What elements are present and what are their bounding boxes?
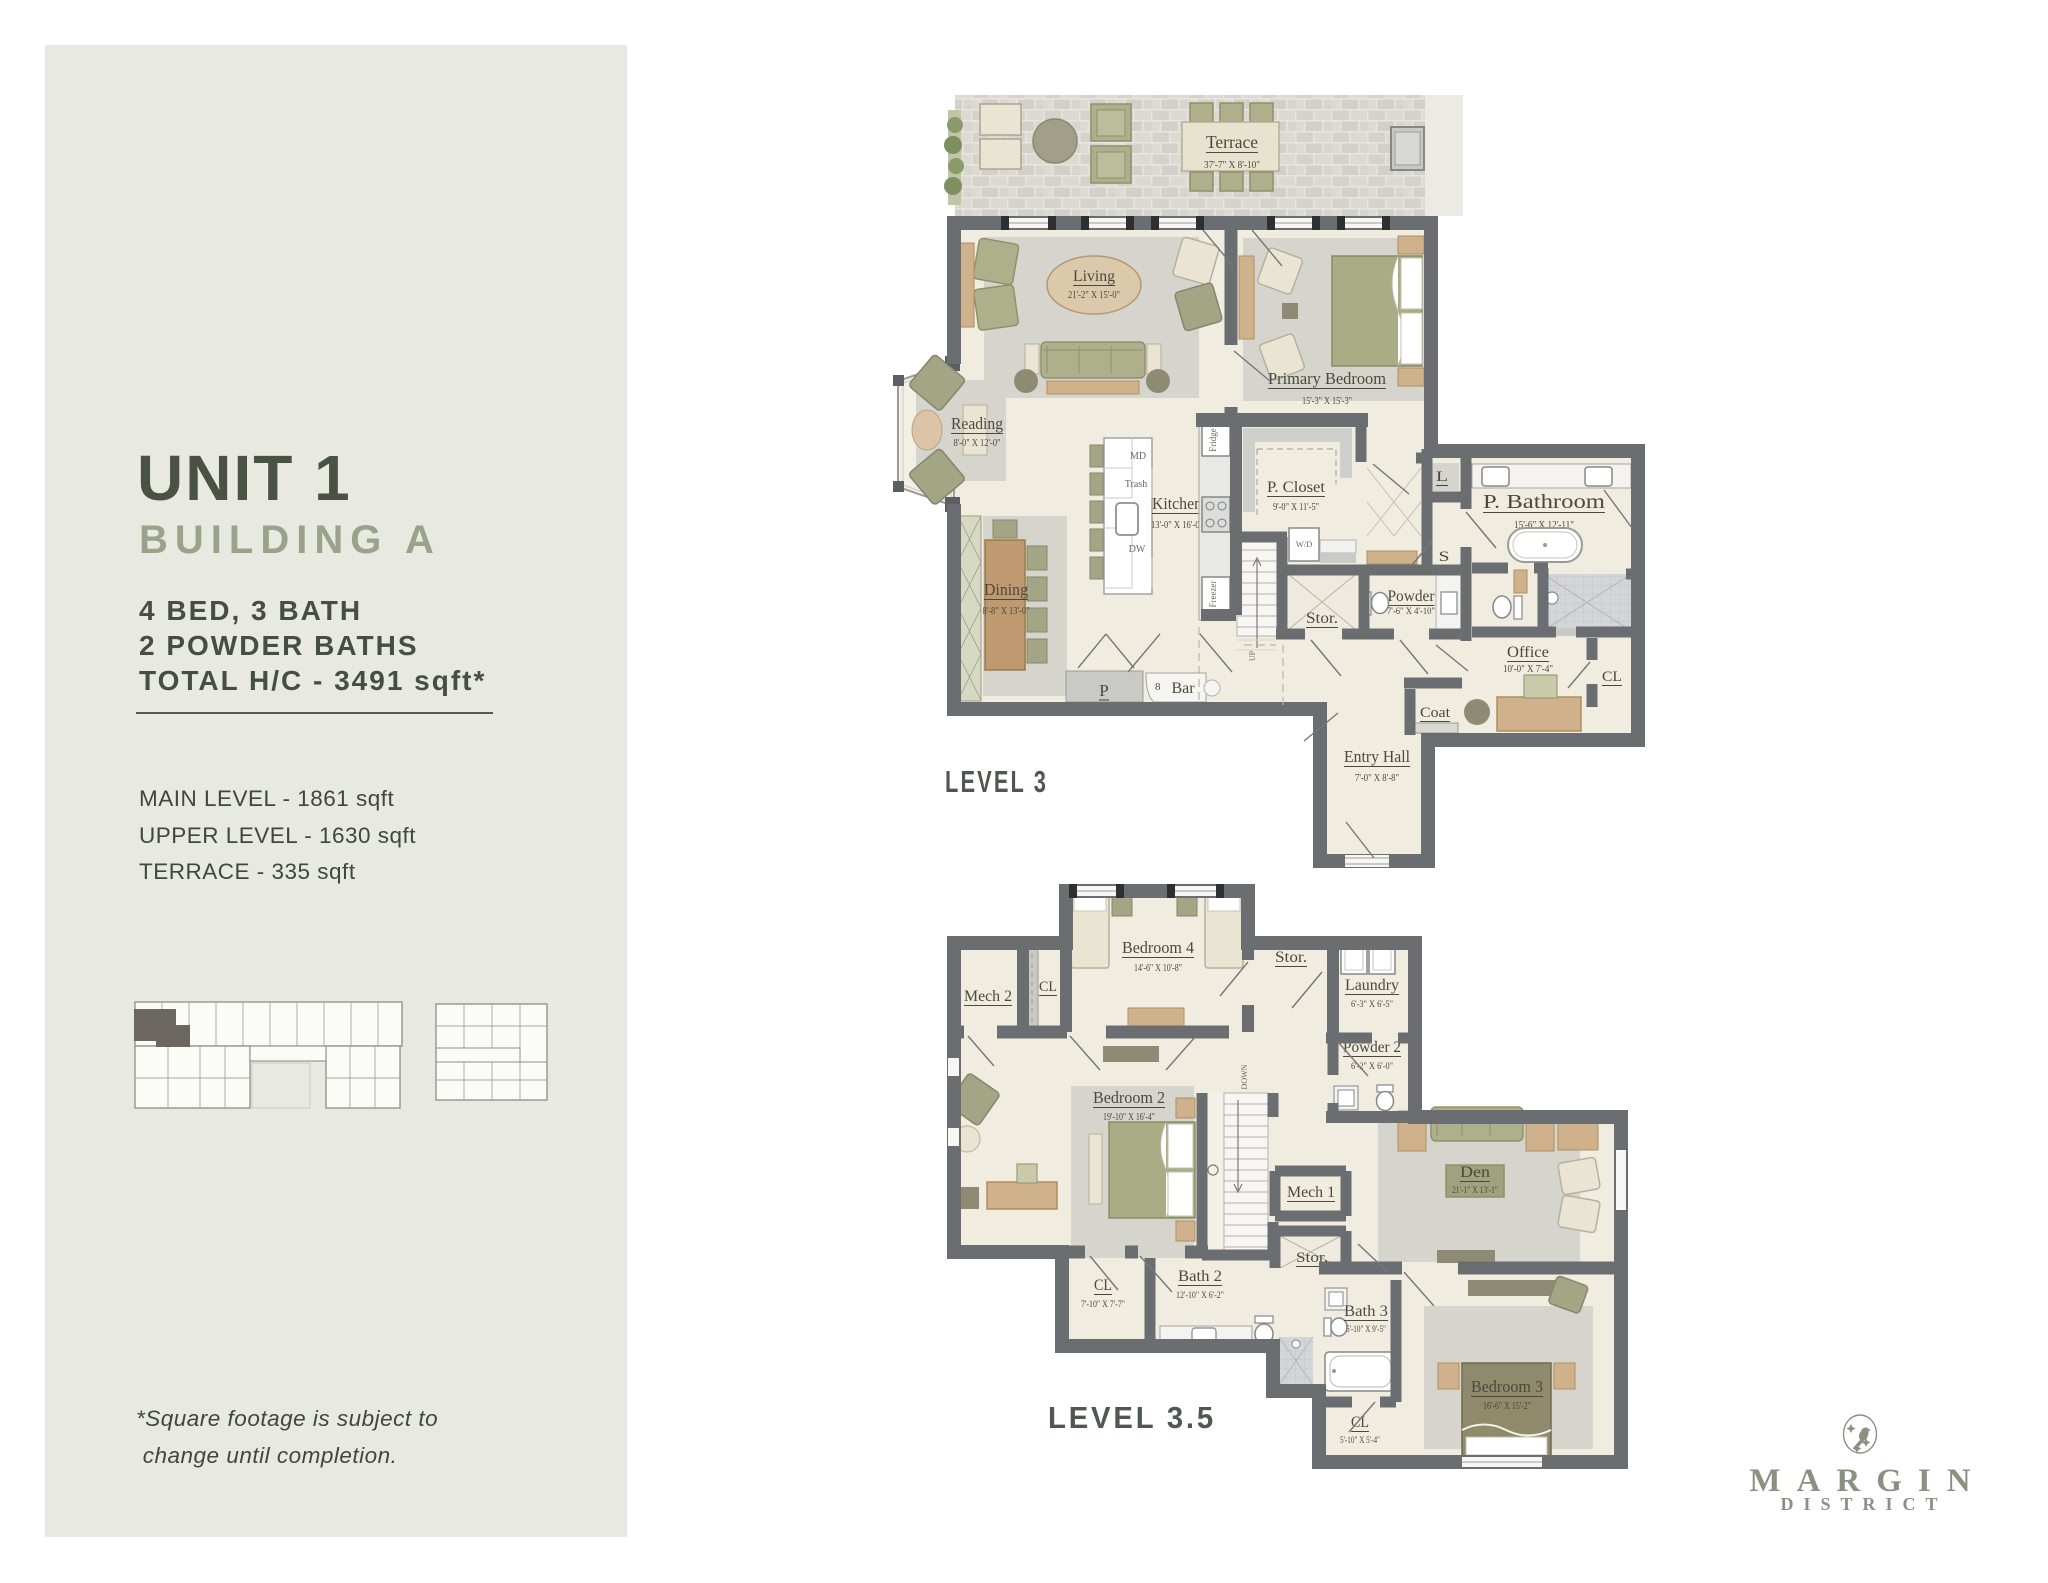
svg-text:MD: MD [1130, 451, 1146, 462]
svg-text:7'-6" X 4'-10": 7'-6" X 4'-10" [1387, 607, 1435, 617]
svg-text:Stor.: Stor. [1306, 610, 1338, 627]
svg-text:CL: CL [1039, 979, 1057, 995]
svg-text:Coat: Coat [1420, 705, 1451, 721]
svg-text:15'-3" X 15'-3": 15'-3" X 15'-3" [1302, 396, 1352, 407]
svg-text:12'-10" X 6'-2": 12'-10" X 6'-2" [1176, 1291, 1224, 1301]
svg-text:Mech 1: Mech 1 [1287, 1184, 1335, 1201]
svg-text:14'-6" X 10'-8": 14'-6" X 10'-8" [1134, 963, 1182, 974]
svg-text:Office: Office [1507, 644, 1549, 661]
svg-text:Freezer: Freezer [1208, 581, 1218, 608]
svg-text:8: 8 [1155, 681, 1161, 693]
svg-text:LEVEL 3: LEVEL 3 [945, 764, 1048, 799]
svg-text:Living: Living [1073, 268, 1115, 285]
svg-text:CL: CL [1351, 1414, 1369, 1431]
svg-text:Trash: Trash [1125, 479, 1147, 490]
svg-text:Bedroom 2: Bedroom 2 [1093, 1088, 1165, 1107]
svg-text:Bar: Bar [1171, 680, 1195, 697]
svg-text:13'-0" X 16'-0": 13'-0" X 16'-0" [1151, 520, 1203, 531]
svg-text:P. Bathroom: P. Bathroom [1483, 491, 1606, 513]
svg-text:Stor.: Stor. [1275, 949, 1307, 966]
svg-text:8'-8" X 13'-0": 8'-8" X 13'-0" [983, 606, 1030, 617]
svg-text:UP: UP [1248, 650, 1257, 661]
svg-text:P. Closet: P. Closet [1267, 479, 1326, 496]
svg-text:5'-10" X 5'-4": 5'-10" X 5'-4" [1340, 1435, 1380, 1445]
svg-text:Powder: Powder [1388, 588, 1436, 605]
svg-text:9'-0" X 11'-5": 9'-0" X 11'-5" [1273, 502, 1319, 513]
svg-text:Dining: Dining [984, 580, 1028, 599]
svg-text:7'-0" X 8'-8": 7'-0" X 8'-8" [1355, 773, 1399, 784]
svg-text:Terrace: Terrace [1206, 132, 1258, 152]
svg-text:S: S [1439, 549, 1450, 565]
svg-text:DOWN: DOWN [1240, 1064, 1249, 1089]
svg-text:21'-2" X 15'-0": 21'-2" X 15'-0" [1068, 290, 1120, 301]
svg-text:37'-7" X 8'-10": 37'-7" X 8'-10" [1204, 160, 1260, 171]
svg-text:8'-0" X 12'-0": 8'-0" X 12'-0" [954, 438, 1001, 449]
svg-text:Kitchen: Kitchen [1152, 494, 1202, 513]
svg-text:Bedroom 4: Bedroom 4 [1122, 938, 1194, 957]
svg-text:Laundry: Laundry [1345, 977, 1399, 994]
svg-text:5'-10" X 9'-5": 5'-10" X 9'-5" [1346, 1324, 1386, 1334]
svg-text:21'-1" X 13'-1": 21'-1" X 13'-1" [1452, 1185, 1498, 1195]
svg-text:DISTRICT: DISTRICT [1780, 1494, 1947, 1514]
svg-text:DW: DW [1129, 544, 1146, 555]
svg-text:16'-6" X 15'-2": 16'-6" X 15'-2" [1483, 1401, 1531, 1412]
svg-text:P: P [1099, 681, 1108, 700]
svg-text:Bath 2: Bath 2 [1178, 1268, 1222, 1285]
svg-text:LEVEL 3.5: LEVEL 3.5 [1048, 1400, 1216, 1435]
svg-text:6'-3" X 6'-5": 6'-3" X 6'-5" [1351, 1000, 1393, 1010]
svg-text:CL: CL [1602, 669, 1622, 685]
svg-text:L: L [1436, 469, 1448, 485]
svg-text:10'-0" X 7'-4": 10'-0" X 7'-4" [1503, 664, 1553, 675]
svg-text:Bath 3: Bath 3 [1344, 1303, 1388, 1320]
svg-text:W/D: W/D [1296, 539, 1313, 549]
svg-text:Entry Hall: Entry Hall [1344, 747, 1410, 766]
svg-text:Reading: Reading [951, 414, 1003, 433]
svg-text:Bedroom 3: Bedroom 3 [1471, 1377, 1543, 1396]
svg-text:Fridge: Fridge [1208, 428, 1218, 452]
svg-text:Primary Bedroom: Primary Bedroom [1268, 369, 1386, 388]
svg-text:7'-10" X 7'-7": 7'-10" X 7'-7" [1081, 1300, 1125, 1310]
svg-text:Den: Den [1460, 1164, 1490, 1181]
svg-text:Mech 2: Mech 2 [964, 988, 1012, 1005]
